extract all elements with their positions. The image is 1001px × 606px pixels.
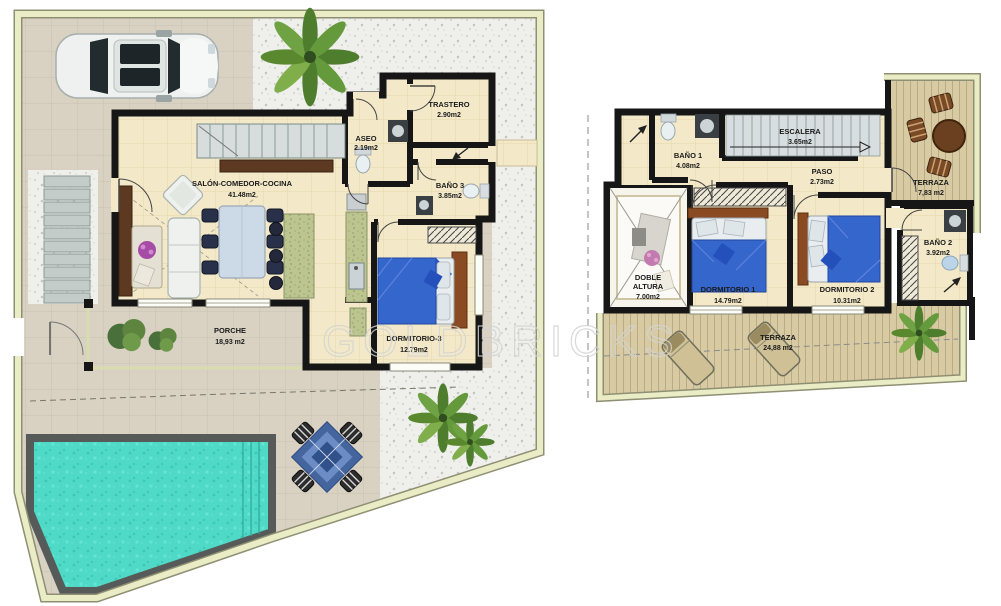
room-label-trastero: TRASTERO: [428, 100, 469, 109]
terrace-table: [933, 120, 965, 152]
hall-sideboard: [220, 160, 333, 172]
room-label-doble-altura-1: DOBLE: [635, 273, 661, 282]
palm-tree: [445, 417, 494, 466]
palm-tree: [261, 8, 360, 107]
pillow: [809, 245, 826, 267]
sofa: [168, 218, 200, 298]
rear-window: [90, 38, 108, 94]
room-area-aseo: 2.19m2: [354, 145, 378, 152]
coffee-table: [132, 226, 162, 288]
wardrobe: [694, 188, 786, 206]
room-area-bano2: 3.92m2: [926, 250, 950, 257]
kitchen-island: [284, 214, 314, 298]
toilet: [942, 256, 958, 270]
terrace-plant: [891, 305, 946, 360]
bedroom2-furniture: [798, 213, 880, 285]
room-label-aseo: ASEO: [355, 134, 376, 143]
toilet: [661, 122, 675, 140]
bar-stool: [270, 250, 283, 263]
room-label-bano1: BAÑO 1: [674, 151, 702, 160]
swimming-pool: [30, 438, 272, 591]
room-label-porche: PORCHE: [214, 326, 246, 335]
floorplan-page: SALÓN-COMEDOR-COCINA 41.48m2 TRASTERO 2.…: [0, 0, 1001, 606]
room-area-escalera: 3.65m2: [788, 139, 812, 146]
exterior-steps: [28, 170, 98, 304]
room-area-doble-altura: 7.00m2: [636, 294, 660, 301]
bar-stool: [270, 223, 283, 236]
toilet: [356, 155, 370, 173]
car: [56, 30, 218, 102]
room-label-bano3: BAÑO 3: [436, 181, 464, 190]
headboard: [688, 208, 768, 218]
ground-floor-plan: SALÓN-COMEDOR-COCINA 41.48m2 TRASTERO 2.…: [12, 8, 540, 598]
room-label-salon: SALÓN-COMEDOR-COCINA: [192, 179, 293, 188]
bar-stool: [270, 277, 283, 290]
room-area-porche: 18,93 m2: [215, 339, 245, 346]
room-area-salon: 41.48m2: [228, 192, 256, 199]
room-label-dormitorio2: DORMITORIO 2: [820, 285, 875, 294]
room-label-doble-altura-2: ALTURA: [633, 282, 664, 291]
headboard: [798, 213, 808, 285]
flower-decor: [138, 241, 156, 259]
room-area-terraza-inf: 24,88 m2: [763, 345, 793, 352]
room-label-terraza-sup: TERRAZA: [913, 178, 949, 187]
windshield: [168, 38, 180, 94]
room-area-paso: 2.73m2: [810, 179, 834, 186]
room-area-dormitorio2: 10.31m2: [833, 298, 861, 305]
pillow: [723, 220, 745, 237]
car-mirror: [156, 30, 172, 37]
wardrobe: [428, 227, 476, 243]
fridge: [347, 194, 366, 210]
watermark: GOLDBRICKS: [322, 317, 681, 366]
room-label-terraza-inf: TERRAZA: [760, 333, 796, 342]
window: [475, 255, 483, 315]
room-area-dormitorio1: 14.79m2: [714, 298, 742, 305]
room-label-escalera: ESCALERA: [779, 127, 821, 136]
toilet: [463, 184, 479, 198]
entry-path: [497, 140, 537, 166]
pillow: [809, 220, 826, 242]
dining-table-set: [202, 206, 283, 278]
room-area-bano3: 3.85m2: [438, 193, 462, 200]
patio-table-set: [291, 421, 363, 493]
room-area-bano1: 4.08m2: [676, 163, 700, 170]
room-label-dormitorio1: DORMITORIO 1: [701, 285, 756, 294]
floorplan-drawing: SALÓN-COMEDOR-COCINA 41.48m2 TRASTERO 2.…: [0, 0, 1001, 606]
room-area-trastero: 2.90m2: [437, 112, 461, 119]
pillow: [696, 219, 718, 236]
room-label-bano2: BAÑO 2: [924, 238, 952, 247]
room-area-terraza-sup: 7,83 m2: [918, 190, 944, 197]
car-mirror: [156, 95, 172, 102]
room-label-paso: PASO: [812, 167, 833, 176]
tv-cabinet: [119, 186, 132, 296]
closet: [902, 236, 918, 300]
